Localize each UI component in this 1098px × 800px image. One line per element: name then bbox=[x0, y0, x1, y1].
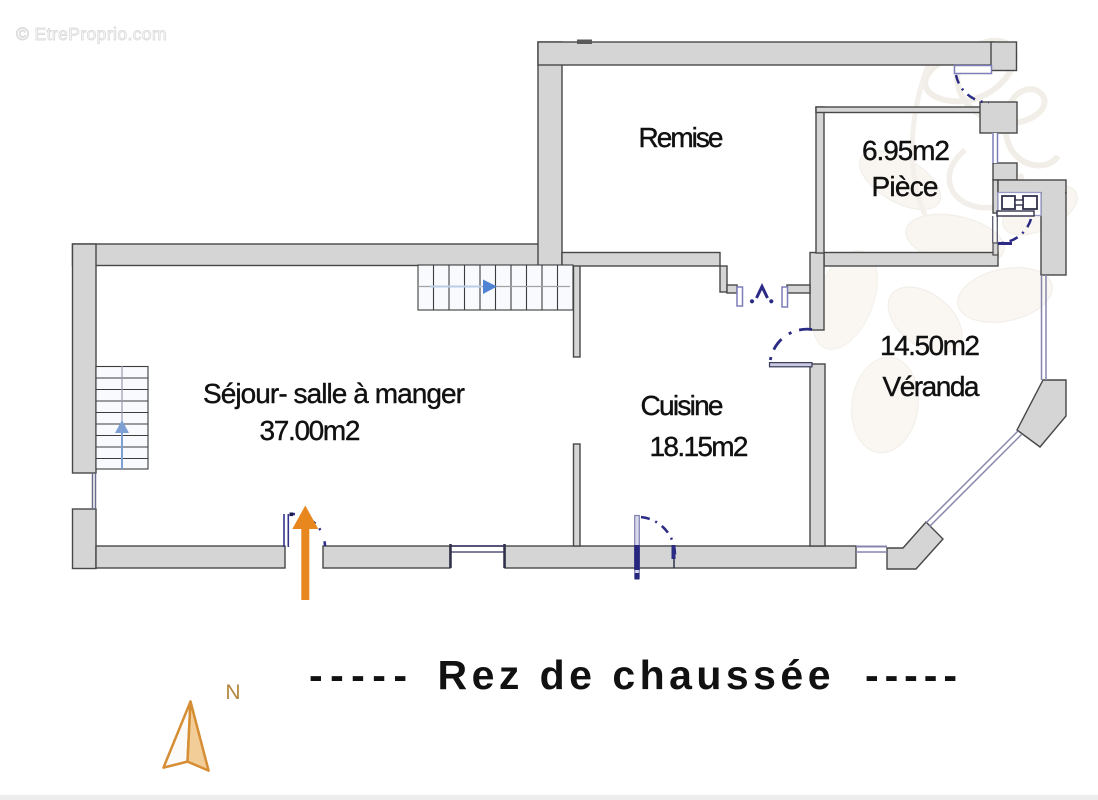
svg-text:© EtreProprio.com: © EtreProprio.com bbox=[16, 24, 167, 44]
svg-text:Séjour- salle à manger: Séjour- salle à manger bbox=[203, 378, 465, 409]
svg-text:6.95m2: 6.95m2 bbox=[862, 135, 950, 166]
svg-text:Véranda: Véranda bbox=[883, 371, 980, 402]
svg-text:N: N bbox=[225, 681, 240, 704]
svg-text:Pièce: Pièce bbox=[872, 171, 939, 202]
svg-text:14.50m2: 14.50m2 bbox=[880, 330, 980, 361]
svg-text:Remise: Remise bbox=[639, 122, 724, 153]
svg-text:18.15m2: 18.15m2 bbox=[650, 431, 749, 462]
svg-text:37.00m2: 37.00m2 bbox=[260, 415, 361, 446]
svg-text:Cuisine: Cuisine bbox=[641, 390, 724, 421]
